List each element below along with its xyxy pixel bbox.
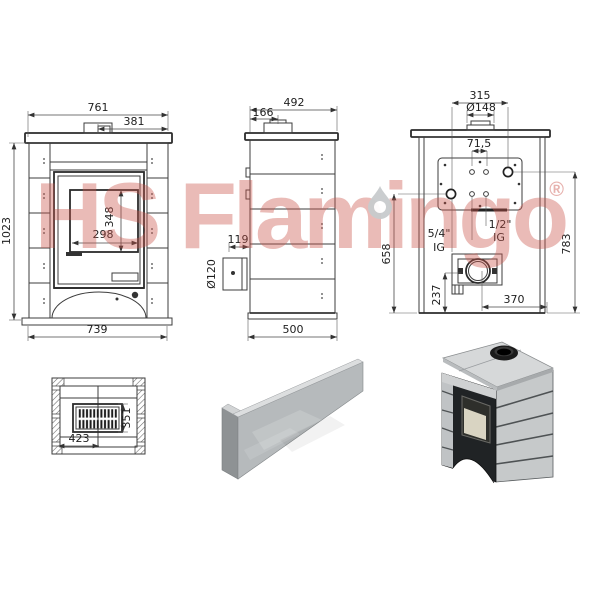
side-hinge-upper xyxy=(246,168,250,177)
dim-front-half-width: 381 xyxy=(124,115,145,128)
dim-back-hole-spacing: 71,5 xyxy=(467,137,492,150)
stove-technical-sheet: 761 381 1023 348 298 739 xyxy=(0,0,600,600)
technical-drawing: 761 381 1023 348 298 739 xyxy=(0,0,600,600)
dim-front-glass-width: 298 xyxy=(93,228,114,241)
side-collar xyxy=(264,123,292,133)
side-view: 492 166 119 Ø120 500 xyxy=(205,96,338,341)
dim-top-inner-width: 423 xyxy=(69,432,90,445)
back-fitting-half-inch xyxy=(503,167,512,176)
dim-back-height-lower-fitting: 658 xyxy=(380,244,393,265)
dim-back-height-upper-fitting: 783 xyxy=(560,234,573,255)
front-view: 761 381 1023 348 298 739 xyxy=(0,101,172,341)
dim-side-outlet-offset: 119 xyxy=(228,233,249,246)
dim-front-overall-width: 761 xyxy=(88,101,109,114)
side-body xyxy=(250,140,335,313)
front-air-control-knob xyxy=(132,292,138,298)
dim-back-outlet-height: 237 xyxy=(430,285,443,306)
back-connection-panel xyxy=(438,158,522,210)
dim-top-grate-depth: 351 xyxy=(120,408,133,429)
dim-front-overall-height: 1023 xyxy=(0,217,13,245)
side-top-plate xyxy=(245,133,338,140)
back-view: 315 Ø148 71,5 1/2" IG 5/4" IG 658 783 23… xyxy=(380,89,580,313)
dim-front-glass-height: 348 xyxy=(103,207,116,228)
label-fitting-large-thread: IG xyxy=(433,241,445,254)
back-top-plate xyxy=(411,130,550,137)
dim-front-base-width: 739 xyxy=(87,323,108,336)
front-top-plate xyxy=(25,133,172,143)
stone-tile-render xyxy=(222,359,363,479)
stove-render xyxy=(442,342,553,486)
dim-side-flue-offset: 166 xyxy=(253,106,274,119)
side-hinge-lower xyxy=(246,190,250,199)
side-rear-outlet xyxy=(223,258,247,290)
stove-front-left-column xyxy=(442,373,453,468)
front-base-arch xyxy=(52,292,146,318)
top-view: 423 351 xyxy=(52,378,145,454)
label-fitting-small-size: 1/2" xyxy=(489,218,512,231)
dim-side-base-depth: 500 xyxy=(283,323,304,336)
front-door-latch xyxy=(112,273,138,281)
dim-back-outlet-offset: 370 xyxy=(504,293,525,306)
label-fitting-small-thread: IG xyxy=(493,231,505,244)
dim-side-flue-diameter: Ø120 xyxy=(205,259,218,289)
dim-back-collar-diameter: Ø148 xyxy=(466,101,496,114)
back-fitting-five-quarter xyxy=(446,189,455,198)
dim-side-overall-depth: 492 xyxy=(284,96,305,109)
label-fitting-large-size: 5/4" xyxy=(428,227,451,240)
